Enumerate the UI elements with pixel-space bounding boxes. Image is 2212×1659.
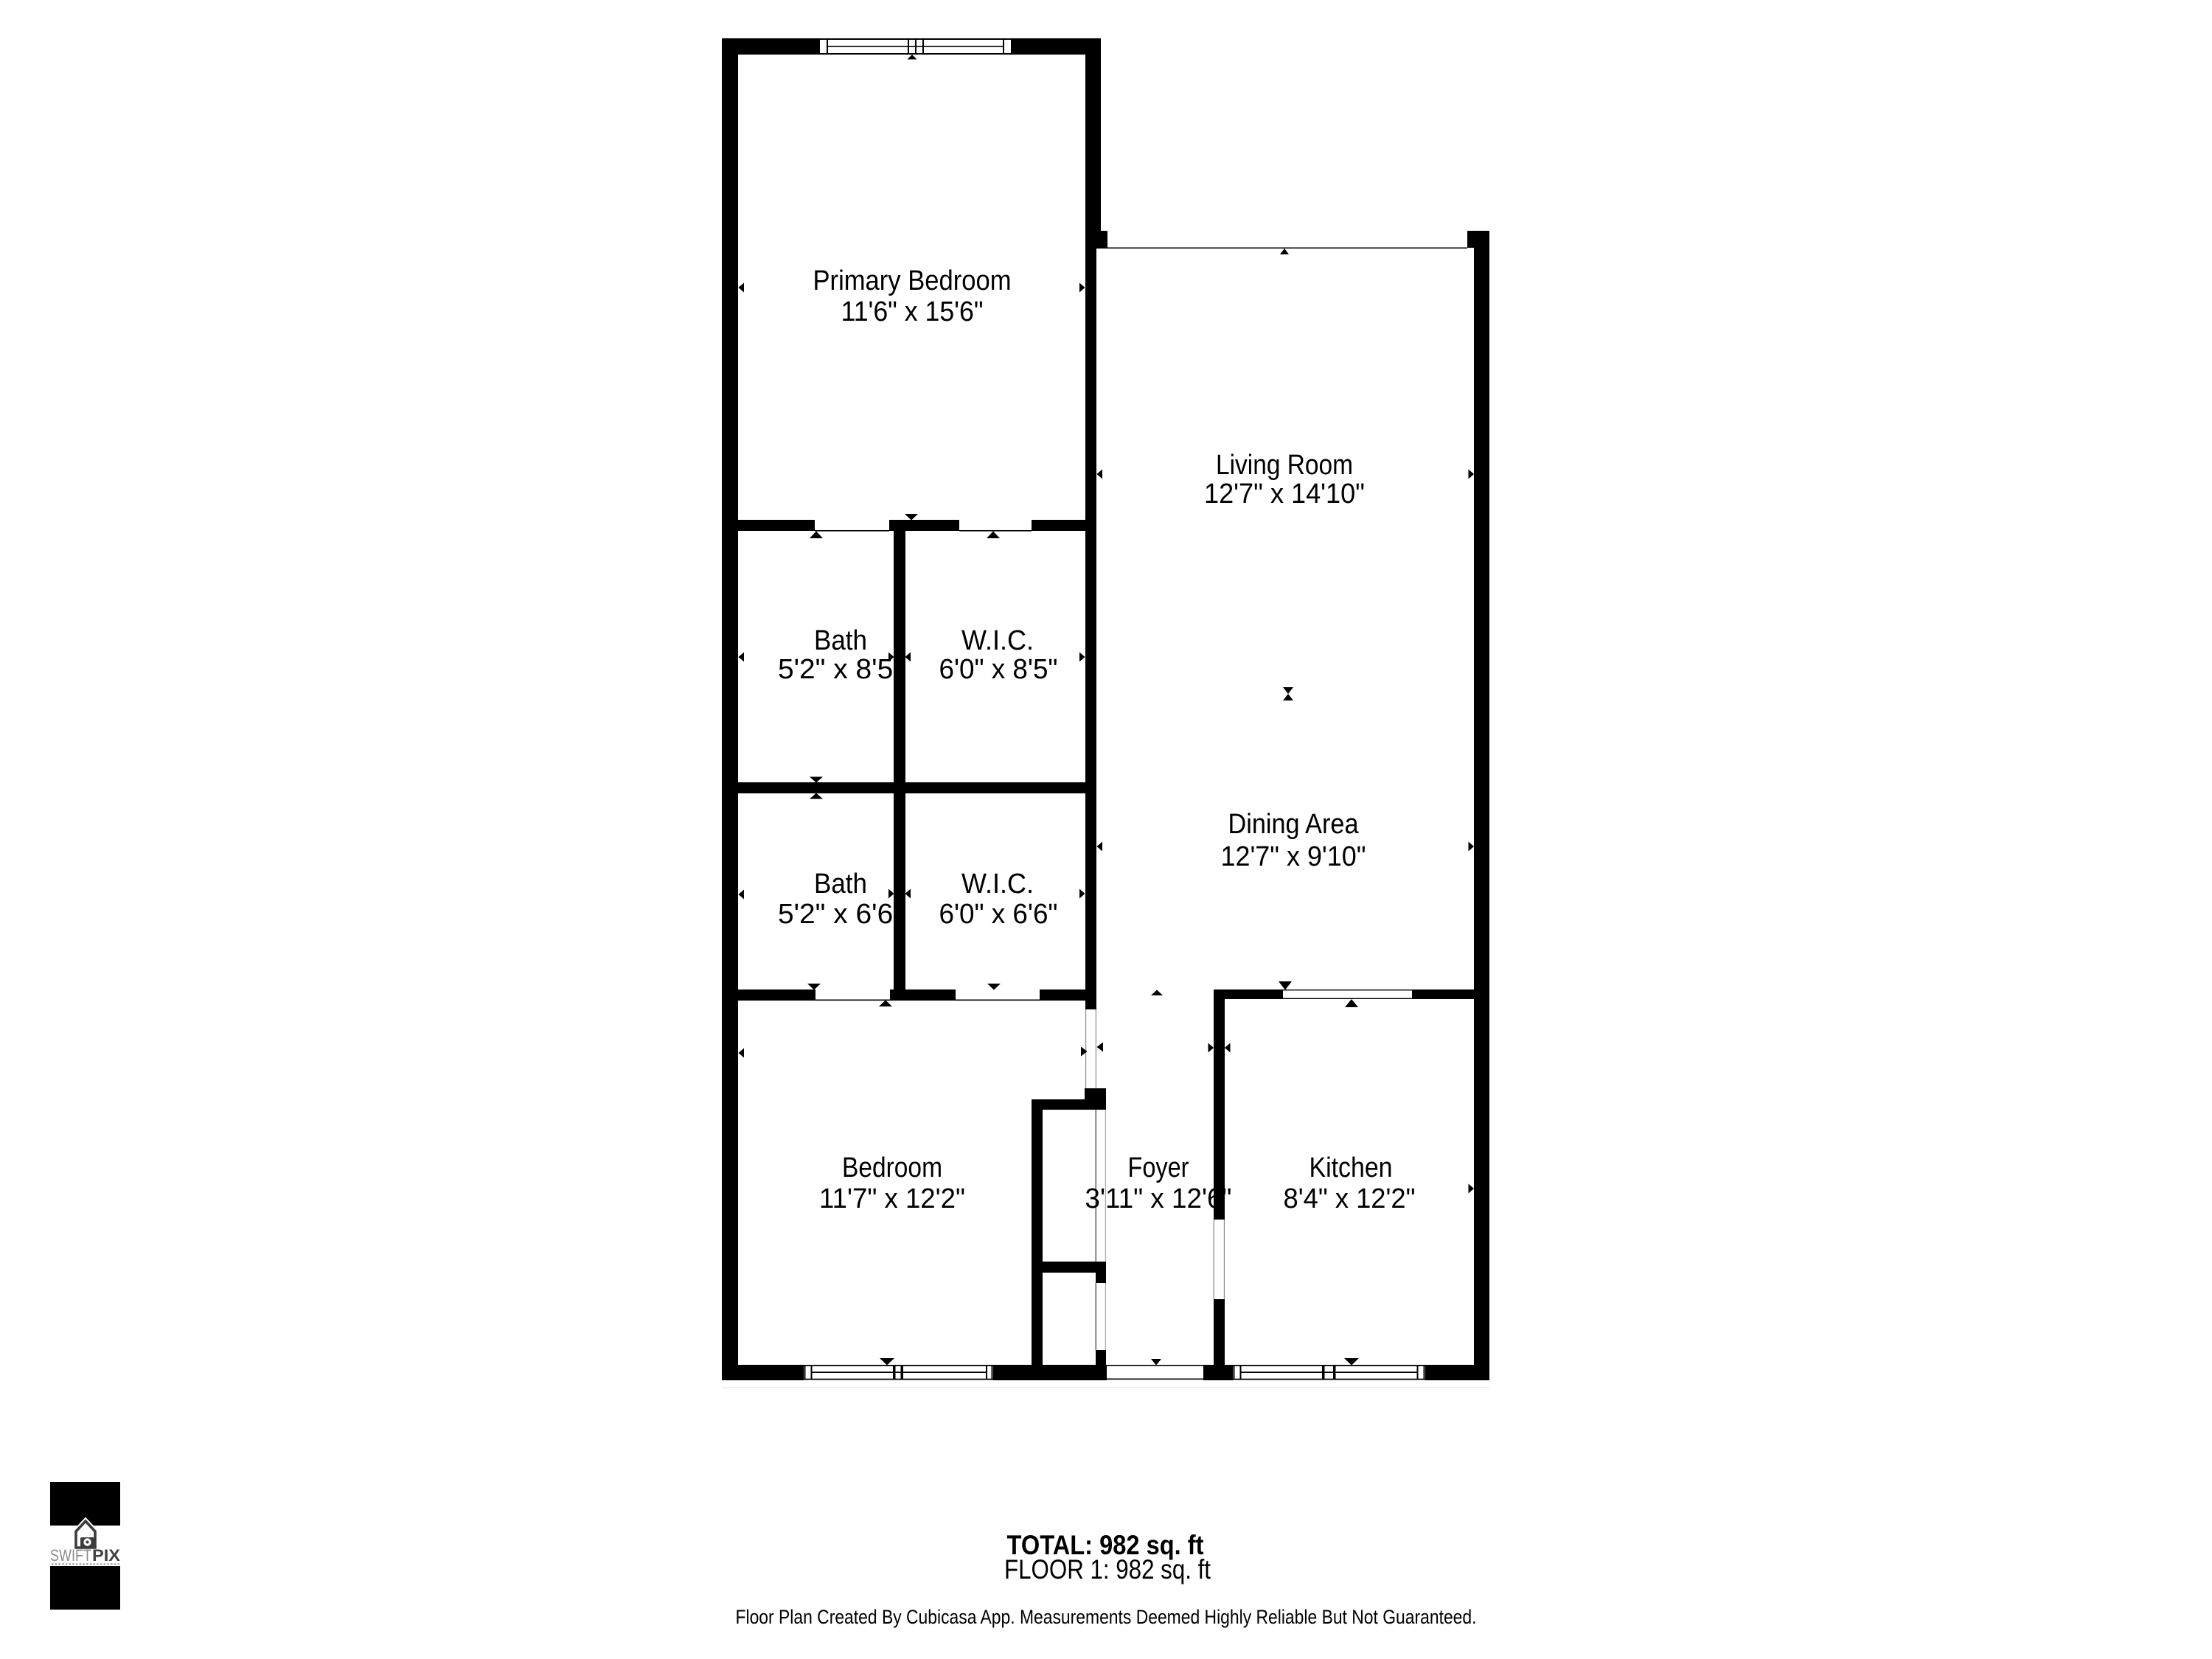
svg-text:3'11" x 12'6": 3'11" x 12'6" — [1085, 1183, 1232, 1214]
svg-text:Dining Area: Dining Area — [1228, 809, 1360, 840]
svg-text:12'7" x 9'10": 12'7" x 9'10" — [1221, 841, 1366, 872]
svg-text:FLOOR 1: 982 sq. ft: FLOOR 1: 982 sq. ft — [1004, 1554, 1211, 1585]
svg-text:Primary Bedroom: Primary Bedroom — [813, 265, 1012, 296]
svg-text:Bath: Bath — [814, 869, 867, 900]
svg-text:Bath: Bath — [814, 625, 867, 656]
svg-text:PIX: PIX — [92, 1546, 120, 1565]
svg-text:SWIFT: SWIFT — [50, 1546, 91, 1565]
svg-text:11'7" x 12'2": 11'7" x 12'2" — [819, 1183, 965, 1214]
svg-text:5'2" x 8'5": 5'2" x 8'5" — [778, 654, 903, 685]
svg-text:6'0" x 6'6": 6'0" x 6'6" — [939, 899, 1058, 930]
svg-text:Living Room: Living Room — [1216, 450, 1353, 481]
svg-text:6'0" x 8'5": 6'0" x 8'5" — [939, 654, 1058, 685]
svg-text:12'7" x 14'10": 12'7" x 14'10" — [1204, 479, 1365, 509]
svg-text:Kitchen: Kitchen — [1310, 1152, 1393, 1183]
svg-text:11'6" x 15'6": 11'6" x 15'6" — [841, 296, 984, 327]
svg-text:W.I.C.: W.I.C. — [961, 625, 1034, 656]
svg-text:Bedroom: Bedroom — [842, 1152, 942, 1183]
svg-text:8'4" x 12'2": 8'4" x 12'2" — [1284, 1183, 1416, 1214]
svg-text:5'2" x 6'6": 5'2" x 6'6" — [778, 899, 903, 930]
svg-text:Floor Plan Created By Cubicasa: Floor Plan Created By Cubicasa App. Meas… — [736, 1606, 1477, 1628]
svg-text:W.I.C.: W.I.C. — [961, 869, 1034, 900]
svg-text:Foyer: Foyer — [1128, 1152, 1189, 1183]
